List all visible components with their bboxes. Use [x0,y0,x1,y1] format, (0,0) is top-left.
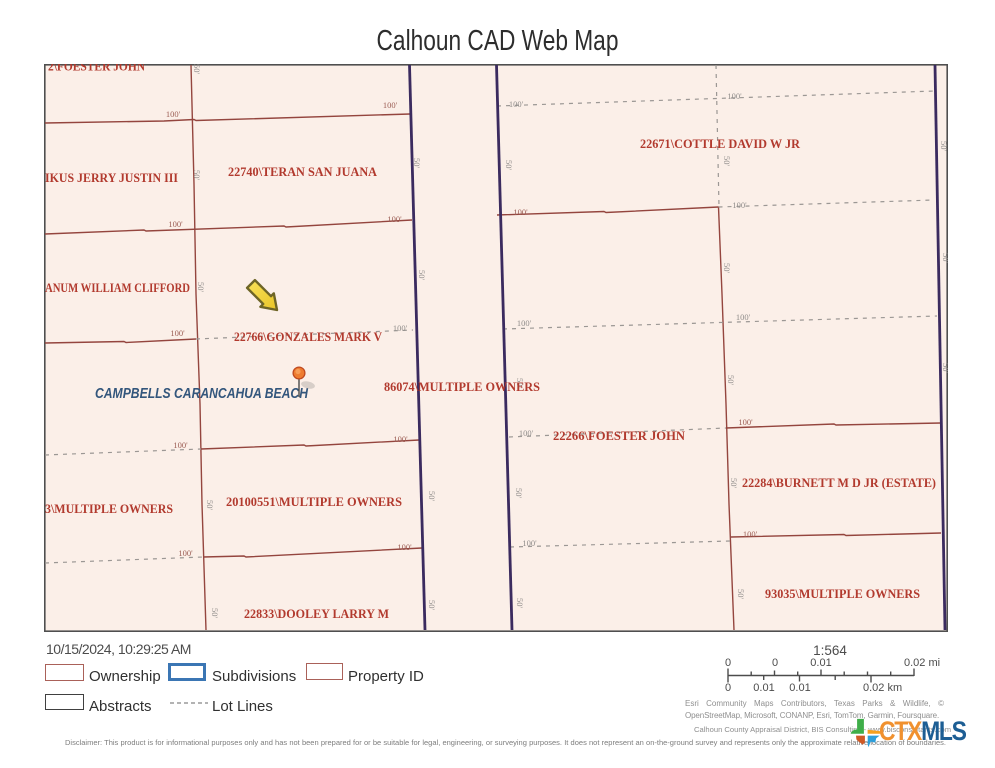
svg-text:50': 50' [417,270,427,281]
svg-text:22740\TERAN SAN JUANA: 22740\TERAN SAN JUANA [228,165,377,179]
svg-text:100': 100' [383,100,398,110]
svg-text:50': 50' [196,282,206,293]
svg-text:100': 100' [743,529,758,539]
svg-text:22266\FOESTER JOHN: 22266\FOESTER JOHN [553,429,685,443]
svg-text:50': 50' [514,488,524,499]
svg-text:50': 50' [427,600,437,611]
svg-text:22833\DOOLEY LARRY M: 22833\DOOLEY LARRY M [244,607,389,621]
svg-text:50': 50' [736,589,746,600]
svg-text:100': 100' [517,318,532,328]
svg-text:3\MULTIPLE OWNERS: 3\MULTIPLE OWNERS [45,502,173,516]
svg-text:50': 50' [722,156,732,167]
svg-text:100': 100' [166,109,181,119]
svg-text:100': 100' [387,214,402,224]
svg-text:IKUS JERRY JUSTIN III: IKUS JERRY JUSTIN III [45,171,178,185]
svg-text:100': 100' [397,542,412,552]
svg-text:100': 100' [170,328,185,338]
svg-text:50': 50' [939,141,948,152]
svg-text:100': 100' [393,323,408,333]
svg-text:86074\MULTIPLE OWNERS: 86074\MULTIPLE OWNERS [384,380,540,394]
svg-text:50': 50' [941,253,948,264]
svg-text:50': 50' [941,363,948,374]
svg-text:100': 100' [178,548,193,558]
svg-text:22284\BURNETT M D JR (ESTATE): 22284\BURNETT M D JR (ESTATE) [742,476,936,490]
svg-text:ANUM WILLIAM CLIFFORD: ANUM WILLIAM CLIFFORD [45,281,190,295]
svg-text:100': 100' [738,417,753,427]
svg-text:100': 100' [519,428,534,438]
svg-text:100': 100' [732,200,747,210]
svg-text:50': 50' [205,500,215,511]
svg-text:50': 50' [210,608,220,619]
svg-text:100': 100' [393,434,408,444]
svg-text:50': 50' [729,478,739,489]
svg-text:100': 100' [736,312,751,322]
svg-text:50': 50' [515,598,525,609]
svg-text:20100551\MULTIPLE OWNERS: 20100551\MULTIPLE OWNERS [226,495,402,509]
svg-text:50': 50' [726,375,736,386]
svg-text:22671\COTTLE DAVID W JR: 22671\COTTLE DAVID W JR [640,137,801,151]
svg-text:50': 50' [427,491,437,502]
svg-text:50': 50' [192,170,202,181]
svg-text:22766\GONZALES MARK V: 22766\GONZALES MARK V [234,330,382,344]
svg-text:100': 100' [173,440,188,450]
svg-text:93035\MULTIPLE OWNERS: 93035\MULTIPLE OWNERS [765,587,920,601]
svg-text:50': 50' [412,158,422,169]
svg-text:50': 50' [504,160,514,171]
svg-text:100': 100' [168,219,183,229]
svg-text:100': 100' [513,207,528,217]
svg-text:CAMPBELLS CARANCAHUA BEACH: CAMPBELLS CARANCAHUA BEACH [95,386,308,402]
svg-text:50': 50' [192,64,202,74]
svg-text:100': 100' [509,99,524,109]
svg-text:50': 50' [722,263,732,274]
svg-text:100': 100' [522,538,537,548]
svg-text:100': 100' [727,91,742,101]
svg-text:2\FOESTER JOHN: 2\FOESTER JOHN [48,64,145,74]
